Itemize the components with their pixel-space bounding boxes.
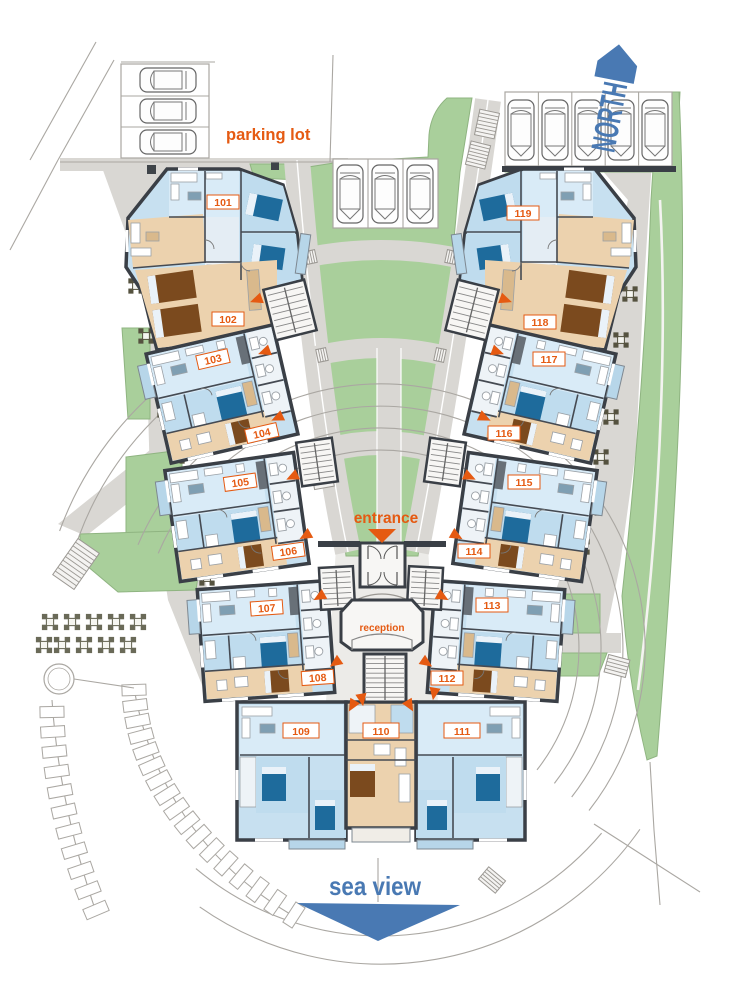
svg-text:sea view: sea view	[329, 871, 422, 901]
svg-text:reception: reception	[359, 623, 404, 634]
svg-text:112: 112	[439, 673, 456, 685]
svg-text:105: 105	[231, 476, 250, 490]
svg-text:114: 114	[466, 546, 483, 558]
svg-text:101: 101	[214, 197, 232, 209]
svg-text:102: 102	[219, 314, 237, 326]
svg-text:116: 116	[496, 428, 513, 440]
svg-text:119: 119	[515, 208, 532, 220]
svg-text:108: 108	[309, 672, 327, 685]
svg-text:115: 115	[516, 477, 533, 489]
svg-text:107: 107	[258, 602, 276, 615]
svg-text:111: 111	[454, 726, 471, 738]
svg-text:109: 109	[292, 726, 310, 738]
svg-text:113: 113	[484, 600, 501, 612]
svg-text:106: 106	[279, 545, 298, 559]
svg-text:110: 110	[373, 726, 390, 738]
svg-text:entrance: entrance	[354, 510, 419, 527]
svg-text:parking lot: parking lot	[226, 126, 311, 144]
svg-text:118: 118	[532, 317, 549, 329]
svg-text:117: 117	[541, 354, 558, 366]
